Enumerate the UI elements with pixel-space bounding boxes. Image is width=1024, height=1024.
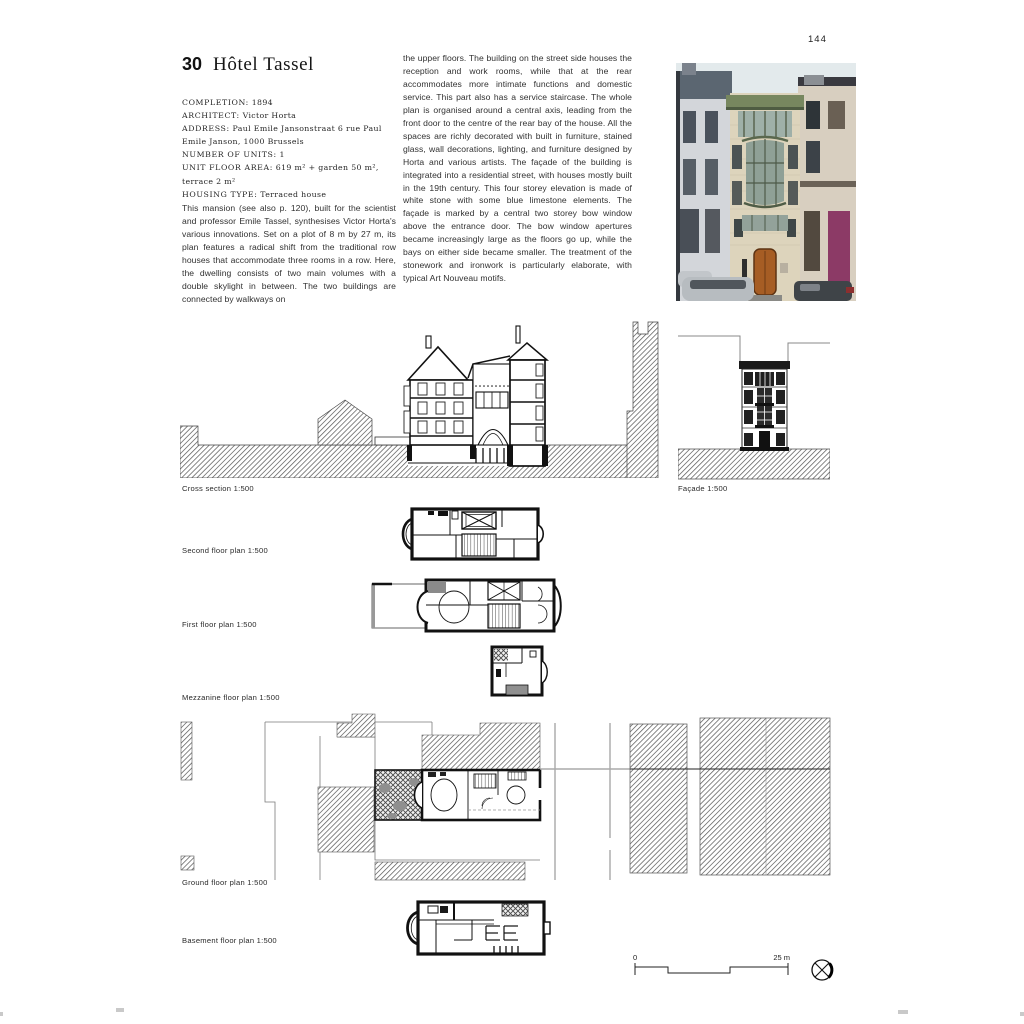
body-text-column-2: the upper floors. The building on the st… — [403, 52, 632, 285]
figure-ground-floor-plan — [178, 710, 833, 882]
meta-line-completion: COMPLETION: 1894 — [182, 96, 402, 109]
crop-mark — [0, 1012, 3, 1016]
first-floor-plan-drawing — [370, 575, 566, 637]
second-floor-label: Second floor plan 1:500 — [182, 546, 268, 555]
ground-floor-label: Ground floor plan 1:500 — [182, 878, 268, 887]
scale-bar-drawing: 0 25 m — [626, 948, 806, 982]
meta-line-floor-area: UNIT FLOOR AREA: 619 m² + garden 50 m², … — [182, 161, 402, 187]
mezzanine-plan-drawing — [486, 643, 550, 701]
figure-second-floor-plan — [398, 503, 548, 565]
north-compass — [806, 954, 838, 986]
crop-mark — [116, 1008, 124, 1012]
ground-floor-site-plan-drawing — [178, 710, 833, 882]
scale-zero-label: 0 — [633, 953, 637, 962]
cross-section-label: Cross section 1:500 — [182, 484, 254, 493]
page-number: 144 — [808, 34, 827, 45]
second-floor-plan-drawing — [398, 503, 548, 565]
meta-line-architect: ARCHITECT: Victor Horta — [182, 109, 402, 122]
crop-mark — [1020, 1012, 1024, 1016]
facade-label: Façade 1:500 — [678, 484, 727, 493]
body-text-column-1: This mansion (see also p. 120), built fo… — [182, 202, 396, 306]
figure-basement-plan — [398, 896, 554, 960]
building-photo — [676, 63, 856, 301]
chapter-title: 30Hôtel Tassel — [182, 54, 314, 76]
cross-section-drawing — [180, 316, 662, 478]
crop-mark — [898, 1010, 908, 1014]
basement-plan-drawing — [398, 896, 554, 960]
basement-label: Basement floor plan 1:500 — [182, 936, 277, 945]
book-page: 144 30Hôtel Tassel COMPLETION: 1894 ARCH… — [0, 0, 1024, 1024]
scale-max-label: 25 m — [773, 953, 790, 962]
project-metadata: COMPLETION: 1894 ARCHITECT: Victor Horta… — [182, 96, 402, 201]
figure-mezzanine-plan — [486, 643, 550, 701]
facade-drawing — [678, 333, 830, 483]
figure-cross-section — [180, 316, 662, 478]
mezzanine-label: Mezzanine floor plan 1:500 — [182, 693, 280, 702]
meta-line-housing-type: HOUSING TYPE: Terraced house — [182, 188, 402, 201]
first-floor-label: First floor plan 1:500 — [182, 620, 257, 629]
figure-first-floor-plan — [370, 575, 566, 637]
hotel-tassel-facade-photo — [676, 63, 856, 301]
entry-number: 30 — [182, 54, 202, 74]
figure-facade — [678, 333, 830, 483]
scale-bar: 0 25 m — [626, 948, 806, 982]
north-arrow-compass-icon — [806, 954, 838, 986]
page-title: Hôtel Tassel — [213, 54, 314, 75]
meta-line-address: ADDRESS: Paul Emile Jansonstraat 6 rue P… — [182, 122, 402, 148]
meta-line-units: NUMBER OF UNITS: 1 — [182, 148, 402, 161]
